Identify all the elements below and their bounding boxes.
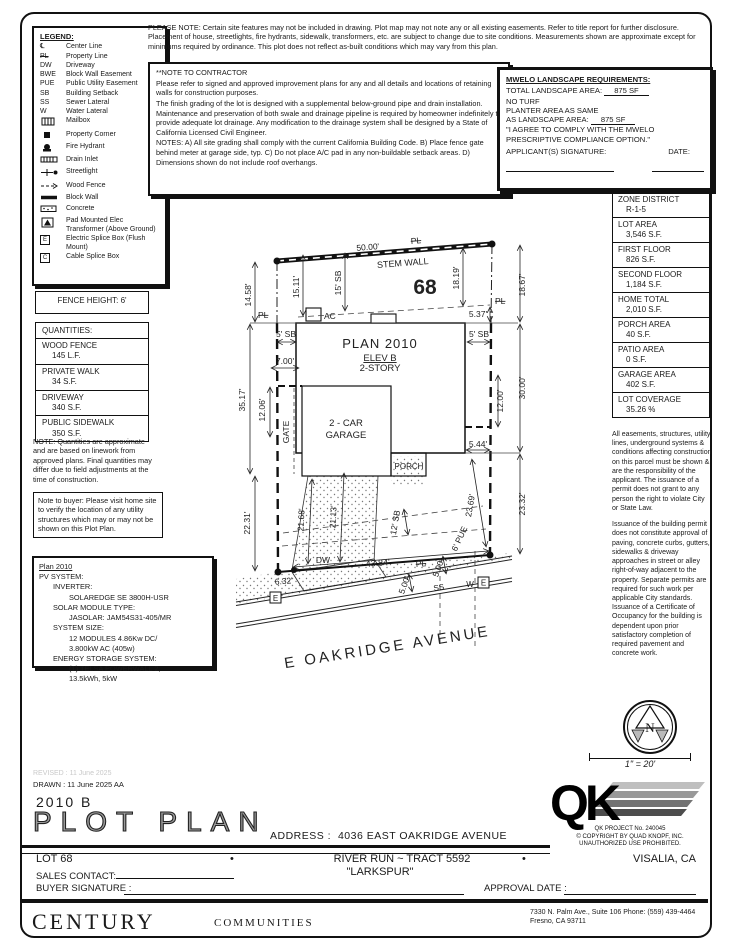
table-row: SECOND FLOOR1,184 S.F. bbox=[613, 268, 709, 293]
legend-item: PLProperty Line bbox=[40, 53, 162, 62]
quantities-title: QUANTITIES: bbox=[36, 323, 148, 339]
page-title: PLOT PLAN bbox=[33, 806, 268, 838]
electric-box-label: E bbox=[273, 594, 278, 603]
table-row: DRIVEWAY340 S.F. bbox=[36, 391, 148, 417]
legend-item: Block Wall bbox=[40, 194, 162, 205]
pue-label: 6' PUE bbox=[449, 524, 469, 552]
sewer-label: SS bbox=[433, 582, 445, 593]
wood-fence-icon bbox=[40, 182, 66, 194]
pl-symbol: PL bbox=[415, 558, 427, 569]
dim-label: 21.68' bbox=[295, 508, 306, 532]
bullet: • bbox=[230, 853, 234, 865]
table-row: WOOD FENCE145 L.F. bbox=[36, 339, 148, 365]
table-row: PRIVATE WALK34 S.F. bbox=[36, 365, 148, 391]
qk-copyright: © COPYRIGHT BY QUAD KNOPF, INC. bbox=[552, 834, 708, 842]
table-row: FIRST FLOOR826 S.F. bbox=[613, 243, 709, 268]
legend-item: Pad Mounted Elec Transformer (Above Grou… bbox=[40, 217, 162, 235]
contractor-p3: NOTES: A) All site grading shall comply … bbox=[156, 138, 502, 167]
qk-letters: QK bbox=[550, 774, 617, 832]
dim-label: 6.32' bbox=[274, 575, 293, 587]
mwelo-signature-label: APPLICANT(S) SIGNATURE: bbox=[506, 146, 606, 157]
property-line-symbol: PL bbox=[40, 53, 66, 62]
legal-paragraph-2: Issuance of the building permit does not… bbox=[612, 520, 712, 659]
legal-notes: All easements, structures, utility lines… bbox=[612, 430, 712, 666]
driveway-label: DW bbox=[316, 555, 330, 565]
legend-item: EElectric Splice Box (Flush Mount) bbox=[40, 235, 162, 253]
scale-bar: 1" = 20' bbox=[585, 748, 695, 769]
block-wall-icon bbox=[40, 194, 66, 205]
story-label: 2-STORY bbox=[360, 363, 401, 374]
mwelo-date-label: DATE: bbox=[668, 146, 690, 157]
mwelo-agreement: "I AGREE TO COMPLY WITH THE MWELO PRESCR… bbox=[506, 125, 704, 143]
quantities-table: QUANTITIES: WOOD FENCE145 L.F. PRIVATE W… bbox=[35, 322, 149, 442]
fence-height-box: FENCE HEIGHT: 6' bbox=[35, 291, 149, 314]
legend-item: Streetlight bbox=[40, 168, 162, 181]
table-row: HOME TOTAL2,010 S.F. bbox=[613, 293, 709, 318]
legend-item: CCable Splice Box bbox=[40, 253, 162, 263]
setback-label: 12' SB bbox=[388, 509, 402, 535]
lot-number: 68 bbox=[413, 276, 437, 299]
note-to-contractor-box: **NOTE TO CONTRACTOR Please refer to sig… bbox=[148, 62, 510, 196]
table-row: GARAGE AREA402 S.F. bbox=[613, 368, 709, 393]
dim-label: 18.67' bbox=[517, 273, 527, 296]
pl-symbol: PL bbox=[410, 235, 421, 246]
legend-item: Drain Inlet bbox=[40, 156, 162, 168]
dim-label: 5.44' bbox=[469, 439, 488, 449]
gate-label: GATE bbox=[281, 420, 291, 443]
legend-item: SSSewer Lateral bbox=[40, 99, 162, 108]
north-label: N bbox=[645, 720, 655, 735]
legend-item: Fire Hydrant bbox=[40, 143, 162, 156]
garage-label: 2 - CAR bbox=[329, 418, 363, 429]
table-row: LOT AREA3,546 S.F. bbox=[613, 218, 709, 243]
quantities-note: NOTE: Quantities are approximate and are… bbox=[33, 437, 157, 484]
approval-date-blank bbox=[564, 883, 696, 895]
mailbox-icon bbox=[40, 117, 66, 130]
contractor-title: **NOTE TO CONTRACTOR bbox=[156, 68, 502, 78]
lot-label: LOT 68 bbox=[36, 853, 73, 865]
setback-label: 15' SB bbox=[333, 270, 343, 295]
builder-brand: CENTURY bbox=[32, 909, 156, 935]
dim-label: 15.11' bbox=[291, 275, 301, 298]
mwelo-planter-value: 875 SF bbox=[591, 115, 635, 125]
concrete-icon bbox=[40, 205, 66, 217]
contractor-p1: Please refer to signed and approved impr… bbox=[156, 79, 502, 98]
driveway-symbol: DW bbox=[40, 62, 66, 71]
dim-label: 12.06' bbox=[257, 398, 267, 421]
setback-label: 5' SB bbox=[276, 329, 296, 339]
dim-label: 30.00' bbox=[517, 376, 527, 399]
mwelo-total-value: 875 SF bbox=[604, 86, 648, 96]
ac-pad-label: AC bbox=[324, 311, 336, 321]
mwelo-planter-label: AS LANDSCAPE AREA: bbox=[506, 115, 589, 124]
drain-inlet-icon bbox=[40, 156, 66, 168]
legend-item: BWEBlock Wall Easement bbox=[40, 71, 162, 80]
dim-label: 18.19' bbox=[451, 266, 461, 289]
streetlight-icon bbox=[40, 168, 66, 181]
address-value: 4036 EAST OAKRIDGE AVENUE bbox=[338, 830, 507, 842]
setback-label: 5' SB bbox=[469, 329, 489, 339]
pl-symbol: PL bbox=[495, 296, 506, 306]
legend-item: Concrete bbox=[40, 205, 162, 217]
table-row: PORCH AREA40 S.F. bbox=[613, 318, 709, 343]
logo-stripe bbox=[607, 782, 705, 789]
property-corner-icon bbox=[40, 131, 66, 143]
house-footprint bbox=[296, 308, 465, 476]
electric-box-label: E bbox=[481, 579, 486, 588]
qk-unauthorized: UNAUTHORIZED USE PROHIBITED. bbox=[552, 841, 708, 849]
pv-title: Plan 2010 bbox=[39, 562, 207, 572]
legend-item: Property Corner bbox=[40, 131, 162, 143]
legend-item: WWater Lateral bbox=[40, 108, 162, 117]
table-row: PATIO AREA0 S.F. bbox=[613, 343, 709, 368]
legend-box: LEGEND: ℄Center Line PLProperty Line DWD… bbox=[32, 26, 167, 286]
dim-label: 43.84' bbox=[365, 557, 390, 569]
legend-item: Mailbox bbox=[40, 117, 162, 130]
please-note-text: PLEASE NOTE: Certain site features may n… bbox=[148, 23, 708, 51]
model-name: "LARKSPUR" bbox=[300, 866, 460, 878]
pv-system-box: Plan 2010 PV SYSTEM: INVERTER: SOLAREDGE… bbox=[32, 556, 214, 668]
dim-label: 50.00' bbox=[356, 241, 380, 253]
legend-title: LEGEND: bbox=[40, 32, 162, 41]
centerline-symbol: ℄ bbox=[40, 43, 66, 52]
porch-label: PORCH bbox=[395, 462, 424, 471]
mwelo-total-label: TOTAL LANDSCAPE AREA: bbox=[506, 86, 602, 95]
fire-hydrant-icon bbox=[40, 143, 66, 156]
address-label: ADDRESS : bbox=[270, 830, 331, 842]
dim-label: 23.69' bbox=[463, 493, 477, 518]
legend-item: ℄Center Line bbox=[40, 43, 162, 52]
transformer-icon bbox=[40, 217, 66, 232]
buyer-note-box: Note to buyer: Please visit home site to… bbox=[33, 492, 163, 538]
dim-label: 23.32' bbox=[517, 492, 527, 515]
dim-label: 7.00' bbox=[276, 356, 295, 366]
footer-bar: CENTURY COMMUNITIES 7330 N. Palm Ave., S… bbox=[22, 899, 708, 936]
legend-item: PUEPublic Utility Easement bbox=[40, 80, 162, 89]
plot-plan-page: LEGEND: ℄Center Line PLProperty Line DWD… bbox=[0, 0, 732, 946]
qk-logo: QK QK PROJECT No. 240045 © COPYRIGHT BY … bbox=[552, 780, 708, 849]
legend-item: Wood Fence bbox=[40, 182, 162, 194]
water-label: W bbox=[466, 580, 474, 589]
dim-label: 22.31' bbox=[242, 511, 252, 534]
date-blank bbox=[652, 171, 704, 172]
block-wall-easement-symbol: BWE bbox=[40, 71, 66, 80]
contractor-p2: The finish grading of the lot is designe… bbox=[156, 99, 502, 138]
signature-blank bbox=[506, 171, 614, 172]
stem-wall-label: STEM WALL bbox=[377, 256, 429, 270]
tract-label: RIVER RUN ~ TRACT 5592 bbox=[272, 853, 532, 865]
scale-line bbox=[589, 748, 691, 759]
dim-label: 5.37' bbox=[469, 309, 488, 319]
builder-address-line2: Fresno, CA 93711 bbox=[530, 917, 695, 926]
dim-label: 35.17' bbox=[237, 388, 247, 411]
garage-label: GARAGE bbox=[326, 430, 367, 441]
cable-splice-box-symbol: C bbox=[40, 253, 66, 263]
zone-summary-table: ZONE DISTRICTR-1-5 LOT AREA3,546 S.F. FI… bbox=[612, 192, 710, 418]
drawn-line: DRAWN : 11 June 2025 AA bbox=[33, 780, 124, 789]
mwelo-box: MWELO LANDSCAPE REQUIREMENTS: TOTAL LAND… bbox=[497, 67, 713, 191]
mwelo-title: MWELO LANDSCAPE REQUIREMENTS: bbox=[506, 74, 704, 85]
setback-symbol: SB bbox=[40, 90, 66, 99]
dim-label: 14.58' bbox=[243, 283, 253, 306]
table-row: ZONE DISTRICTR-1-5 bbox=[613, 193, 709, 218]
buyer-signature-label: BUYER SIGNATURE : bbox=[36, 883, 131, 894]
buyer-signature-blank bbox=[124, 883, 464, 895]
plan-name: PLAN 2010 bbox=[342, 336, 418, 351]
water-symbol: W bbox=[40, 108, 66, 117]
dim-label: 12.00' bbox=[495, 389, 505, 412]
revised-line: REVISED : 11 June 2025 bbox=[33, 770, 111, 777]
scale-text: 1" = 20' bbox=[585, 759, 695, 769]
sewer-symbol: SS bbox=[40, 99, 66, 108]
legal-paragraph-1: All easements, structures, utility lines… bbox=[612, 430, 712, 513]
pl-symbol: PL bbox=[258, 310, 269, 320]
builder-brand-secondary: COMMUNITIES bbox=[214, 917, 314, 929]
dim-label: 5.00' bbox=[396, 574, 412, 595]
legend-item: SBBuilding Setback bbox=[40, 90, 162, 99]
sales-contact-blank bbox=[116, 868, 234, 879]
electric-splice-box-symbol: E bbox=[40, 235, 66, 245]
table-row: LOT COVERAGE35.26 % bbox=[613, 393, 709, 417]
bullet: • bbox=[522, 853, 526, 865]
approval-date-label: APPROVAL DATE : bbox=[484, 883, 567, 894]
street-name: E OAKRIDGE AVENUE bbox=[283, 623, 491, 672]
pue-symbol: PUE bbox=[40, 80, 66, 89]
site-plan-drawing: 50.00' PL STEM WALL 68 14.58' PL 15.11' … bbox=[228, 220, 613, 690]
city-label: VISALIA, CA bbox=[633, 853, 696, 865]
dim-label: 21.13' bbox=[327, 505, 338, 529]
builder-address-line1: 7330 N. Palm Ave., Suite 106 Phone: (559… bbox=[530, 908, 695, 917]
sales-contact-label: SALES CONTACT: bbox=[36, 871, 116, 882]
legend-item: DWDriveway bbox=[40, 62, 162, 71]
